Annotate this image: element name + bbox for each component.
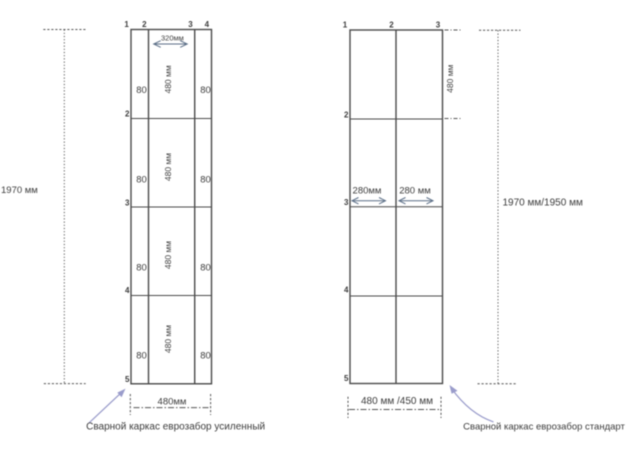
svg-text:1970 мм/1950 мм: 1970 мм/1950 мм	[503, 198, 583, 209]
svg-text:80: 80	[200, 85, 211, 96]
svg-text:5: 5	[344, 374, 349, 383]
svg-text:1: 1	[124, 20, 129, 29]
svg-text:80: 80	[200, 351, 211, 362]
svg-text:4: 4	[125, 286, 130, 295]
svg-text:Сварной каркас еврозабор станд: Сварной каркас еврозабор стандарт	[463, 422, 625, 433]
svg-text:280 мм: 280 мм	[399, 186, 431, 197]
svg-text:5: 5	[125, 375, 130, 384]
svg-text:480 мм: 480 мм	[445, 64, 455, 92]
svg-text:280мм: 280мм	[353, 186, 382, 197]
svg-text:3: 3	[188, 20, 193, 29]
svg-text:3: 3	[125, 199, 130, 208]
svg-text:80: 80	[136, 175, 147, 186]
svg-text:2: 2	[142, 20, 147, 29]
svg-text:1970 мм: 1970 мм	[1, 185, 38, 196]
svg-text:3: 3	[436, 21, 441, 30]
svg-text:480мм: 480мм	[158, 397, 187, 408]
svg-text:80: 80	[136, 263, 147, 274]
svg-text:1: 1	[343, 21, 348, 30]
svg-text:480 мм: 480 мм	[163, 325, 173, 353]
svg-text:2: 2	[125, 110, 130, 119]
svg-text:80: 80	[136, 351, 147, 362]
svg-text:2: 2	[344, 111, 349, 120]
svg-text:4: 4	[344, 286, 349, 295]
svg-text:80: 80	[200, 175, 211, 186]
svg-text:480 мм: 480 мм	[163, 65, 173, 93]
svg-text:4: 4	[205, 20, 210, 29]
svg-text:3: 3	[344, 198, 349, 207]
svg-text:Сварной каркас еврозабор усиле: Сварной каркас еврозабор усиленный	[86, 421, 265, 433]
svg-text:480 мм /450 мм: 480 мм /450 мм	[361, 396, 433, 407]
svg-text:480 мм: 480 мм	[163, 241, 173, 269]
svg-text:80: 80	[136, 85, 147, 96]
svg-text:480 мм: 480 мм	[163, 153, 173, 181]
svg-text:2: 2	[389, 21, 394, 30]
svg-text:80: 80	[200, 263, 211, 274]
